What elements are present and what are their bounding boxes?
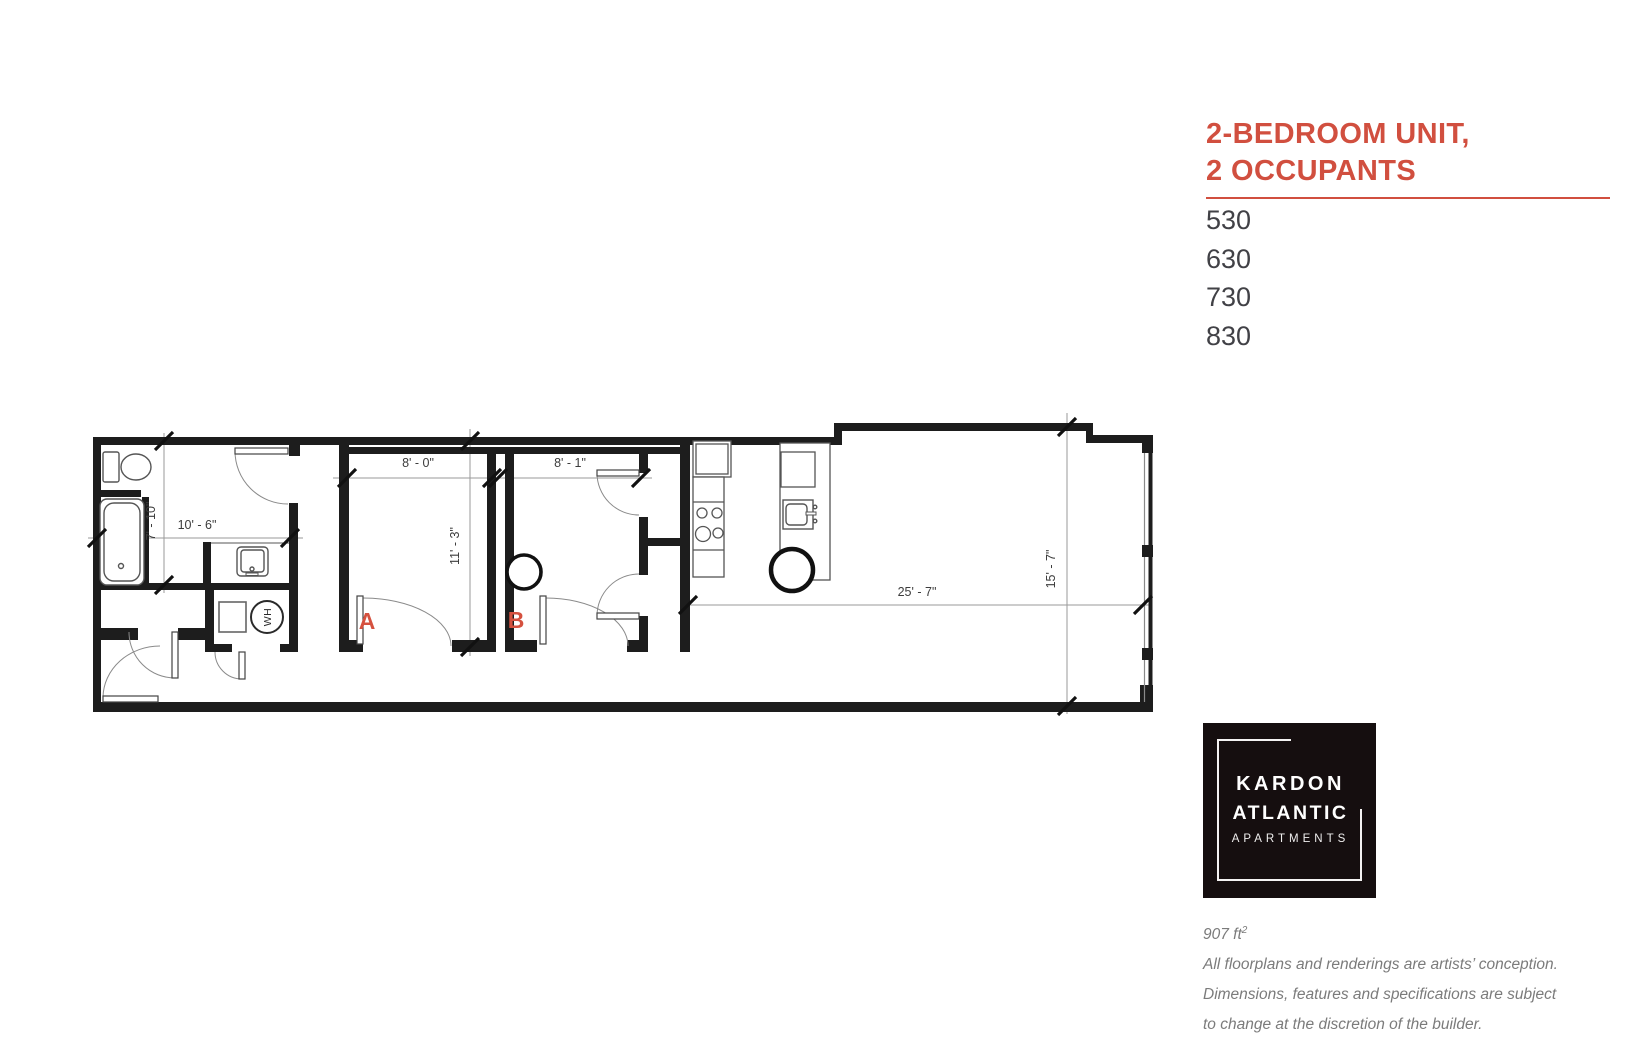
title-block: 2-BEDROOM UNIT, 2 OCCUPANTS xyxy=(1206,116,1612,199)
water-heater-label: WH xyxy=(262,608,274,627)
title-underline xyxy=(1206,197,1610,199)
room-label-bedroom-b: B xyxy=(508,607,525,633)
bathtub xyxy=(100,499,144,585)
logo-frame-top xyxy=(1217,739,1291,741)
disclaimer-line1: All floorplans and renderings are artist… xyxy=(1203,950,1558,980)
entry-door-leaf xyxy=(103,696,158,702)
page-title-line1: 2-BEDROOM UNIT, xyxy=(1206,116,1612,153)
kitchen-counter xyxy=(693,477,724,577)
door-arcs xyxy=(103,451,639,697)
dim-bath-width: 10' - 6" xyxy=(178,518,217,532)
dim-living-depth: 15' - 7" xyxy=(1044,550,1058,589)
kitchen-sink xyxy=(783,500,817,529)
logo-frame-bottom xyxy=(1217,879,1362,881)
kardon-atlantic-logo: KARDON ATLANTIC APARTMENTS xyxy=(1203,723,1376,898)
room-label-bedroom-a: A xyxy=(359,608,376,634)
area-text: 907 ft2 xyxy=(1203,916,1558,950)
logo-name-line1: KARDON xyxy=(1217,770,1364,799)
dim-living-width: 25' - 7" xyxy=(898,585,937,599)
refrigerator xyxy=(693,441,731,477)
door-leaves xyxy=(103,448,639,702)
wh-closet-door-arc xyxy=(215,652,242,679)
closet-top-door-leaf xyxy=(597,470,639,476)
bedroom-a-door-arc xyxy=(363,598,451,646)
bedroom-b-door-leaf xyxy=(540,596,546,644)
window-wall xyxy=(1142,443,1153,702)
area-superscript: 2 xyxy=(1242,925,1248,936)
column-kitchen xyxy=(771,549,813,591)
unit-number-list: 530 630 730 830 xyxy=(1206,201,1251,355)
dim-bedroom-a-depth: 11' - 3" xyxy=(448,527,462,565)
toilet xyxy=(103,452,151,482)
column-bedroom-b xyxy=(507,555,541,589)
wh-closet-door-leaf xyxy=(239,652,245,679)
unit-number: 830 xyxy=(1206,317,1251,356)
page-title-line2: 2 OCCUPANTS xyxy=(1206,153,1612,190)
disclaimer-line2: Dimensions, features and specifications … xyxy=(1203,980,1558,1010)
bath-door-arc xyxy=(235,451,288,504)
dim-bath-depth: 7' - 10" xyxy=(144,502,158,541)
logo-text: KARDON ATLANTIC APARTMENTS xyxy=(1217,770,1364,851)
unit-number: 730 xyxy=(1206,278,1251,317)
unit-number: 630 xyxy=(1206,240,1251,279)
bath-door-leaf xyxy=(235,448,288,454)
bedroom-b-door-arc xyxy=(546,598,628,646)
doors xyxy=(103,448,639,702)
water-heater: WH xyxy=(219,601,283,633)
dim-bedroom-a-width: 8' - 0" xyxy=(402,456,434,470)
dim-bedroom-b-width: 8' - 1" xyxy=(554,456,586,470)
closet-top-door-arc xyxy=(597,473,639,515)
logo-name-line3: APARTMENTS xyxy=(1217,827,1364,851)
bathroom-sink xyxy=(211,543,289,576)
disclaimer-block: 907 ft2 All floorplans and renderings ar… xyxy=(1203,916,1558,1039)
logo-name-line2: ATLANTIC xyxy=(1217,799,1364,827)
unit-number: 530 xyxy=(1206,201,1251,240)
disclaimer-line3: to change at the discretion of the build… xyxy=(1203,1010,1558,1040)
closet-bottom-door-leaf xyxy=(597,613,639,619)
closet-bottom-door-arc xyxy=(597,574,639,616)
brochure-page: WH xyxy=(0,0,1637,1059)
entry-closet-door-leaf xyxy=(172,632,178,678)
